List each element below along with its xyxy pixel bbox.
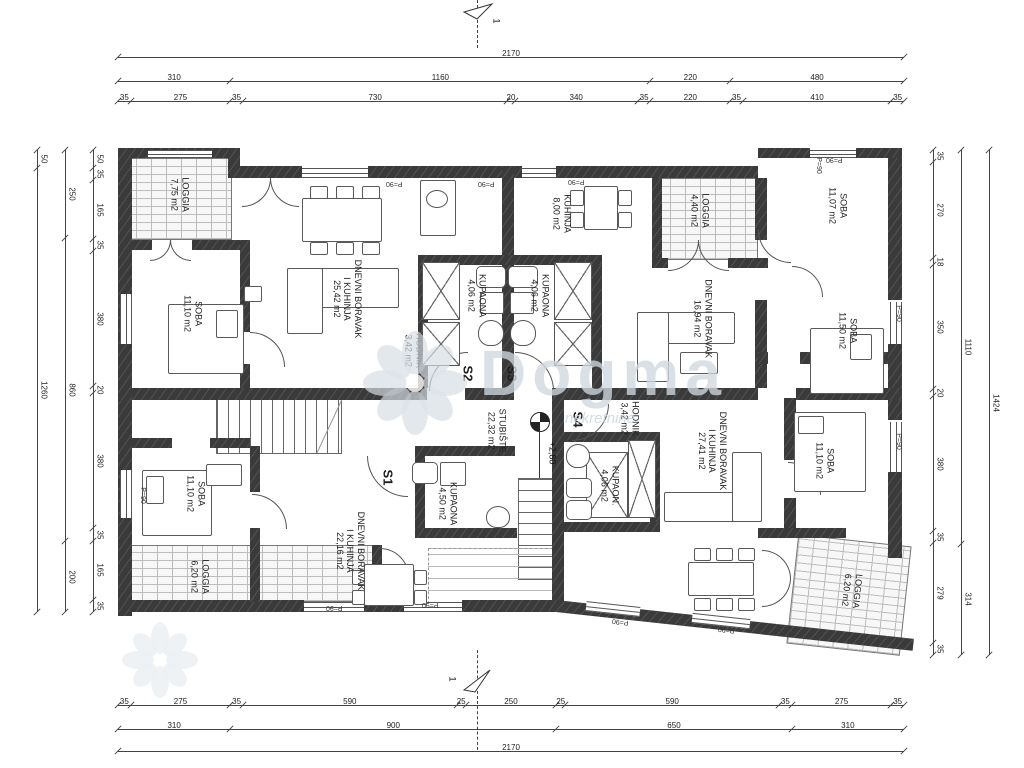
dim-segment: 590	[565, 698, 779, 712]
dim-value: 35	[120, 93, 129, 102]
watermark-flower-icon	[120, 620, 200, 700]
room-label-hodnik-s4: HODNIK3,42 m2	[619, 364, 640, 474]
dim-segment: 480	[730, 74, 904, 88]
parapet-mark: P=90	[895, 433, 902, 450]
dim-segment: 900	[230, 722, 556, 736]
door-arc	[792, 266, 823, 297]
room-name: STUBIŠTE	[497, 409, 508, 453]
dim-value: 50	[96, 154, 105, 163]
parapet-mark: P=90	[139, 487, 146, 504]
dim-segment: 1110	[954, 150, 968, 544]
dim-value: 380	[96, 312, 105, 325]
sofa	[732, 452, 762, 522]
chair	[336, 186, 354, 199]
room-area: 11,10 m2	[814, 442, 825, 479]
wall	[758, 528, 846, 538]
dim-value: 35	[936, 152, 945, 161]
room-area: 11,07 m2	[827, 187, 838, 224]
elevation-value: +2,80	[547, 442, 557, 465]
dim-segment: 310	[118, 722, 230, 736]
wall	[758, 352, 768, 364]
dim-value: 35	[120, 697, 129, 706]
chair	[694, 598, 711, 611]
wall	[250, 528, 260, 602]
dim-segment: 2170	[118, 50, 904, 64]
room-label-soba2-s3: SOBA11,50 m2	[837, 276, 858, 386]
wall	[652, 178, 662, 258]
dim-value: 35	[732, 93, 741, 102]
room-label-soba-s2: SOBA11,10 m2	[182, 259, 203, 369]
dim-segment: 279	[926, 543, 940, 642]
wall	[514, 166, 522, 178]
dim-value: 2170	[502, 743, 520, 752]
dim-value: 730	[368, 93, 381, 102]
room-name: KUPAONA	[477, 274, 488, 317]
wall	[728, 258, 768, 268]
chair	[362, 242, 380, 255]
kitchen-table	[584, 186, 618, 230]
room-area: 4,50 m2	[437, 487, 448, 520]
room-name: SOBA	[848, 318, 859, 343]
dim-value: 900	[387, 721, 400, 730]
dim-segment: 340	[515, 94, 638, 108]
nightstand	[244, 286, 262, 302]
room-name: HODNIK	[630, 401, 641, 436]
dining-table	[364, 564, 414, 606]
dim-value: 220	[684, 73, 697, 82]
chair	[738, 598, 755, 611]
dim-segment: 250	[466, 698, 557, 712]
room-area: 3,42 m2	[619, 402, 630, 435]
dim-segment: 35	[926, 643, 940, 655]
dim-segment: 314	[954, 544, 968, 655]
wall	[652, 258, 668, 268]
door-arc	[252, 494, 287, 529]
dim-chain-left-detail: 503516535380203803516535	[86, 150, 100, 612]
wall	[888, 158, 902, 300]
dim-segment: 310	[792, 722, 904, 736]
chair	[414, 570, 427, 585]
room-name: DNEVNI BORAVAK	[703, 279, 714, 358]
dim-value: 314	[964, 593, 973, 606]
dim-value: 310	[167, 73, 180, 82]
room-name: DNEVNI BORAVAK I KUHINJA	[342, 260, 363, 339]
chair	[310, 186, 328, 199]
dim-segment: 270	[926, 162, 940, 258]
section-number: 1	[448, 676, 458, 681]
chair	[694, 548, 711, 561]
dim-value: 35	[936, 644, 945, 653]
room-area: 22,32 m2	[486, 412, 497, 450]
door-arc	[762, 578, 791, 607]
parapet-mark: P=90	[478, 180, 495, 187]
pillow	[216, 310, 238, 338]
wall	[758, 148, 810, 158]
room-label-stubiste: STUBIŠTE22,32 m2	[486, 376, 507, 486]
dim-value: 350	[936, 320, 945, 333]
shower	[554, 262, 592, 320]
dim-segment: 35	[891, 94, 904, 108]
room-name: DNEVNI BORAVAK I KUHINJA	[345, 512, 366, 591]
dim-segment: 275	[792, 698, 892, 712]
wall	[240, 166, 302, 178]
parapet-mark: P=90	[568, 178, 585, 185]
shaft	[422, 322, 460, 366]
dim-value: 310	[841, 721, 854, 730]
dim-value: 35	[781, 697, 790, 706]
dim-chain-bottom-major: 310900650310	[118, 722, 904, 736]
room-label-soba-s4: SOBA11,10 m2	[814, 406, 835, 516]
door-arc	[515, 352, 554, 391]
sink	[566, 478, 592, 498]
dim-segment: 860	[58, 238, 72, 541]
dim-segment: 200	[58, 541, 72, 612]
room-name: DNEVNI BORAVAK I KUHINJA	[707, 412, 728, 491]
room-label-dnevni-s3: DNEVNI BORAVAK16,94 m2	[692, 264, 713, 374]
wall	[118, 148, 132, 616]
dim-value: 860	[68, 383, 77, 396]
dim-segment: 380	[926, 396, 940, 531]
room-name: SOBA	[196, 481, 207, 506]
dim-segment: 350	[926, 265, 940, 389]
wall	[462, 600, 562, 612]
room-area: 4,06 m2	[599, 469, 610, 502]
dim-value: 250	[504, 697, 517, 706]
dim-segment: 410	[743, 94, 892, 108]
dim-value: 35	[232, 93, 241, 102]
wall	[368, 166, 502, 178]
parapet-mark: P=90	[718, 625, 735, 634]
dim-value: 35	[893, 697, 902, 706]
room-name: KUPAONA	[540, 274, 551, 317]
dim-segment: 275	[131, 94, 231, 108]
room-area: 7,75 m2	[169, 178, 180, 211]
dim-segment: 35	[891, 698, 904, 712]
chair	[362, 186, 380, 199]
room-area: 27,41 m2	[696, 432, 707, 470]
room-name: LOGGIA	[700, 193, 711, 228]
unit-label-s2: S2	[460, 366, 475, 382]
dim-value: 275	[174, 93, 187, 102]
section-flag-icon	[462, 666, 494, 694]
window	[120, 470, 132, 518]
room-label-loggia-s1: LOGGIA6,20 m2	[189, 522, 210, 632]
unit-label-s1: S1	[380, 470, 395, 486]
chair	[618, 190, 632, 206]
dim-value: 380	[936, 457, 945, 470]
dim-segment: 380	[86, 251, 100, 386]
dim-segment: 50	[86, 150, 100, 168]
toilet	[486, 506, 510, 528]
dim-segment: 220	[650, 94, 730, 108]
dim-segment: 165	[86, 180, 100, 239]
dim-value: 165	[96, 203, 105, 216]
dim-chain-right-major: 1110314	[954, 150, 968, 655]
dim-segment: 220	[650, 74, 730, 88]
room-label-kupaona-s1: KUPAONA4,50 m2	[437, 449, 458, 559]
dim-value: 275	[174, 697, 187, 706]
unit-label-s3: S3	[504, 366, 519, 382]
window	[302, 168, 368, 178]
parapet-mark: P=90	[815, 157, 822, 174]
sofa	[637, 312, 669, 382]
dim-value: 410	[810, 93, 823, 102]
room-area: 16,94 m2	[692, 300, 703, 338]
room-name: LOGGIA	[180, 177, 191, 212]
kitchen-sink	[426, 190, 448, 208]
wall	[192, 240, 240, 250]
wall	[132, 438, 172, 448]
dim-segment: 2170	[118, 744, 904, 758]
room-label-soba1-s3: SOBA11,07 m2	[827, 151, 848, 261]
dim-value: 35	[640, 93, 649, 102]
dim-value: 275	[835, 697, 848, 706]
room-area: 4,06 m2	[466, 279, 477, 312]
dim-value: 2170	[502, 49, 520, 58]
dim-value: 590	[665, 697, 678, 706]
dim-value: 200	[68, 570, 77, 583]
room-name: KUPAONA	[448, 482, 459, 525]
room-area: 3,42 m2	[403, 334, 414, 367]
room-area: 8,00 m2	[551, 197, 562, 230]
dim-chain-bottom-overall: 2170	[118, 744, 904, 758]
chair	[618, 212, 632, 228]
room-label-loggia-s2: LOGGIA7,75 m2	[169, 140, 190, 250]
wall	[132, 240, 152, 250]
wall	[118, 600, 304, 612]
room-area: 11,10 m2	[182, 295, 193, 332]
unit-label-s4: S4	[570, 412, 585, 428]
dim-segment: 35	[86, 600, 100, 612]
room-area: 22,16 m2	[334, 532, 345, 570]
dim-value: 590	[343, 697, 356, 706]
wall	[415, 446, 425, 538]
parapet-mark: P=90	[895, 305, 902, 322]
chair	[716, 548, 733, 561]
dim-value: 270	[936, 204, 945, 217]
kitchen-counter	[206, 464, 242, 486]
wall	[552, 400, 564, 608]
dim-value: 220	[684, 93, 697, 102]
dim-segment: 250	[58, 150, 72, 238]
wall	[132, 388, 427, 400]
dim-value: 165	[96, 564, 105, 577]
sink	[566, 500, 592, 520]
room-label-dnevni-s2: DNEVNI BORAVAK I KUHINJA25,42 m2	[331, 244, 363, 354]
dim-value: 480	[810, 73, 823, 82]
chair	[716, 598, 733, 611]
dim-segment: 50	[30, 150, 44, 168]
dim-value: 340	[570, 93, 583, 102]
parapet-mark: P=90	[422, 601, 439, 608]
wall	[228, 148, 240, 178]
dim-value: 1260	[40, 381, 49, 399]
dim-value: 1160	[432, 73, 449, 82]
dim-segment: 380	[86, 393, 100, 528]
dim-chain-left-overall: 501260	[30, 150, 44, 612]
dim-chain-top-major: 3101160220480	[118, 74, 904, 88]
wall	[856, 148, 902, 158]
room-label-kupaona-s2: KUPAONA4,06 m2	[466, 241, 487, 351]
shower	[422, 262, 460, 320]
room-label-loggia-s3: LOGGIA4,40 m2	[689, 156, 710, 266]
room-area: 25,42 m2	[331, 280, 342, 318]
dim-value: 35	[893, 93, 902, 102]
elevation-line	[539, 432, 540, 478]
dim-value: 650	[667, 721, 680, 730]
dim-segment: 730	[243, 94, 507, 108]
door-arc	[150, 240, 171, 261]
wall	[250, 446, 260, 492]
room-name: SOBA	[838, 193, 849, 218]
room-name: SOBA	[825, 448, 836, 473]
shaft	[554, 322, 592, 366]
door-arc	[242, 178, 271, 207]
dim-value: 35	[232, 697, 241, 706]
dim-segment: 1260	[30, 168, 44, 612]
wall	[415, 528, 517, 538]
room-label-kupaona-s3: KUPAONA4,06 m2	[529, 241, 550, 351]
dim-chain-top-overall: 2170	[118, 50, 904, 64]
dim-value: 50	[40, 154, 49, 163]
wall	[592, 265, 602, 388]
door-arc	[762, 550, 791, 579]
room-name: KUHINJA	[562, 194, 573, 233]
wall	[784, 498, 796, 530]
sink	[412, 462, 438, 484]
dim-chain-right-detail: 3527018350203803527935	[926, 150, 940, 655]
chair	[310, 242, 328, 255]
dining-table	[688, 562, 754, 596]
room-area: 11,50 m2	[837, 312, 848, 349]
dim-value: 310	[167, 721, 180, 730]
dim-chain-left-major: 250860200	[58, 150, 72, 612]
dim-segment: 1160	[230, 74, 650, 88]
dim-chain-bottom-detail: 352753559025250255903527535	[118, 698, 904, 712]
wall	[210, 438, 250, 448]
parapet-mark: P=90	[826, 156, 843, 163]
wall	[755, 300, 767, 388]
section-number: 1	[492, 18, 502, 23]
dim-chain-right-overall: 1424	[982, 150, 996, 655]
room-label-hodnik-s2: HODNIK3,42 m2	[403, 296, 424, 406]
dim-value: 1110	[964, 339, 973, 356]
wall	[888, 472, 902, 558]
room-area: 11,10 m2	[185, 475, 196, 512]
parapet-mark: P=90	[386, 180, 403, 187]
dim-value: 380	[96, 454, 105, 467]
dim-segment: 590	[243, 698, 457, 712]
sofa	[287, 268, 323, 334]
kitchen-counter	[420, 180, 456, 236]
parapet-mark: P=90	[612, 617, 629, 626]
dim-chain-top-detail: 352753573020340352203541035	[118, 94, 904, 108]
room-label-kupaon-s4: KUPAON.4,06 m2	[599, 431, 620, 541]
dim-value: 35	[96, 241, 105, 250]
room-name: KUPAON.	[610, 466, 621, 506]
room-area: 6,20 m2	[189, 560, 200, 593]
room-name: SOBA	[193, 301, 204, 326]
dim-segment: 650	[556, 722, 791, 736]
room-area: 4,06 m2	[529, 279, 540, 312]
dim-segment: 310	[118, 74, 230, 88]
room-label-dnevni-s4: DNEVNI BORAVAK I KUHINJA27,41 m2	[696, 396, 728, 506]
elevation-symbol	[530, 412, 550, 432]
dim-value: 35	[96, 601, 105, 610]
room-area: 4,40 m2	[689, 194, 700, 227]
dim-segment: 1424	[982, 150, 996, 655]
room-name: LOGGIA	[200, 559, 211, 594]
floor-plan-canvas: LOGGIA7,75 m2 SOBA11,10 m2 DNEVNI BORAVA…	[0, 0, 1024, 768]
parapet-mark: P=90	[326, 604, 343, 611]
dim-value: 279	[936, 586, 945, 599]
door-arc	[270, 178, 299, 207]
section-flag-icon	[462, 2, 494, 24]
window	[120, 294, 132, 344]
toilet	[566, 444, 590, 468]
dining-table	[302, 198, 382, 242]
room-label-kuhinja-s3: KUHINJA8,00 m2	[551, 159, 572, 269]
room-label-dnevni-s1: DNEVNI BORAVAK I KUHINJA22,16 m2	[334, 496, 366, 606]
room-name: HODNIK	[414, 333, 425, 368]
dim-value: 250	[68, 187, 77, 200]
pillow	[146, 476, 164, 504]
dim-value: 1424	[992, 394, 1001, 412]
chair	[738, 548, 755, 561]
door-arc	[250, 332, 285, 367]
dim-segment: 275	[131, 698, 231, 712]
wall	[888, 344, 902, 420]
dim-segment: 165	[86, 541, 100, 600]
dim-value: 35	[936, 533, 945, 542]
dim-value: 35	[96, 170, 105, 179]
